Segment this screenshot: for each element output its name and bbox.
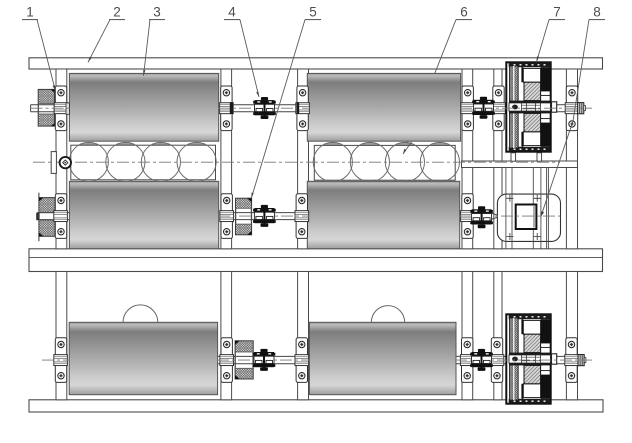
svg-text:8: 8 bbox=[593, 5, 601, 20]
svg-text:7: 7 bbox=[553, 5, 561, 20]
svg-text:5: 5 bbox=[309, 5, 317, 20]
svg-text:6: 6 bbox=[460, 5, 468, 20]
svg-text:2: 2 bbox=[113, 5, 121, 20]
svg-text:3: 3 bbox=[153, 5, 161, 20]
svg-text:1: 1 bbox=[26, 5, 34, 20]
svg-text:4: 4 bbox=[228, 5, 236, 20]
